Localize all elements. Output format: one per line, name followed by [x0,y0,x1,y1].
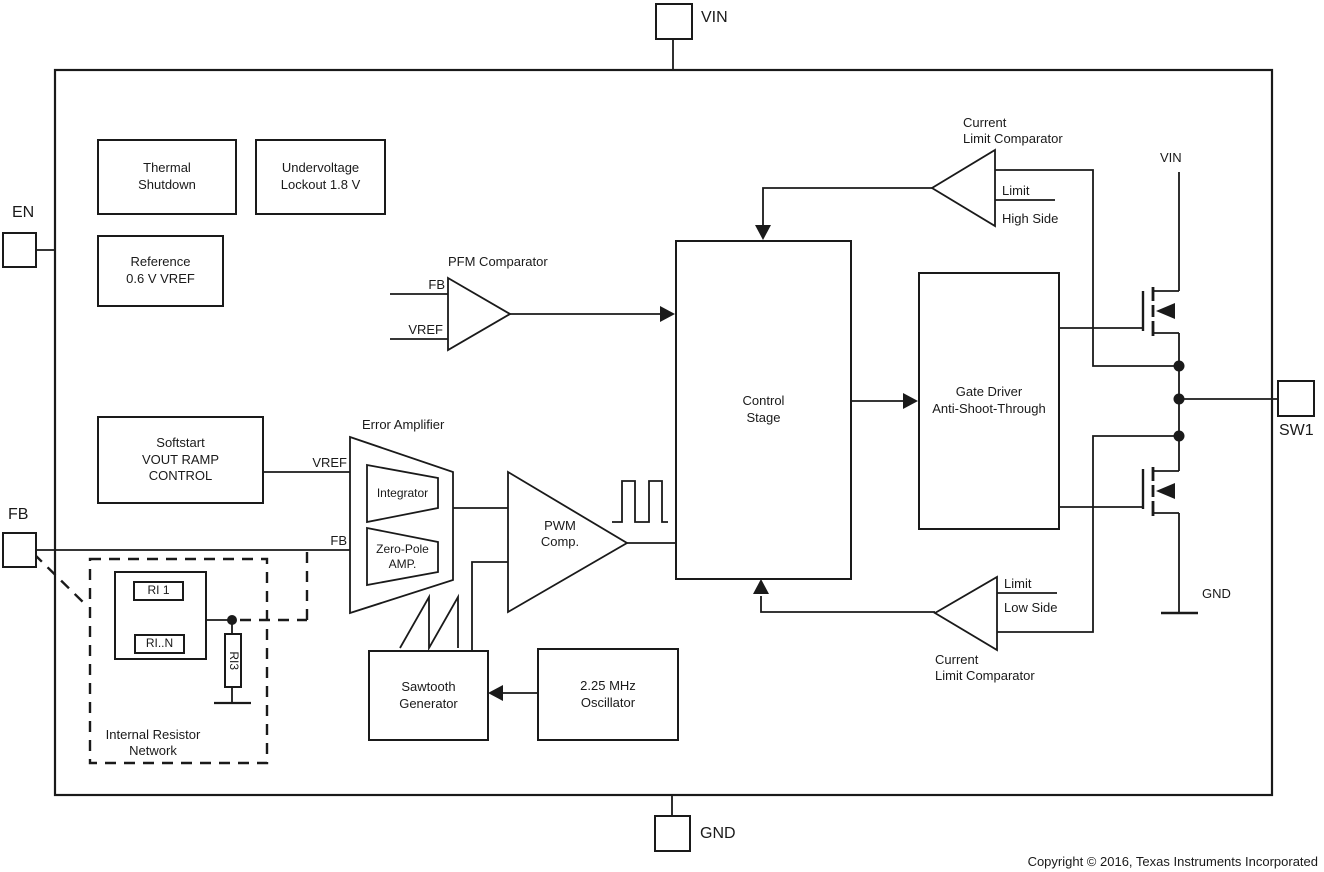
pin-sw1 [1277,380,1315,417]
ea-fb-label: FB [300,533,347,549]
arrow-cl-top-out [755,225,771,240]
error-amplifier-title: Error Amplifier [362,417,444,433]
pin-en [2,232,37,268]
error-amplifier-shape [350,437,453,613]
wire-fb-tap-dashed [240,552,307,620]
thermal-shutdown-block: Thermal Shutdown [97,139,237,215]
arrow-pfm-out [660,306,675,322]
cl-bottom-limit-label: Limit [1004,576,1031,592]
pin-vin-label: VIN [701,8,728,28]
current-limit-comparator-top-triangle [932,150,995,226]
undervoltage-lockout-block: Undervoltage Lockout 1.8 V [255,139,386,215]
junction-dot-sense-high [1174,361,1185,372]
gate-driver-block: Gate Driver Anti-Shoot-Through [918,272,1060,530]
arrow-osc-out [488,685,503,701]
pfm-fb-label: FB [397,277,445,293]
ea-vref-label: VREF [290,455,347,471]
resistor-network-label: Internal Resistor Network [92,727,214,759]
cl-top-title: Current Limit Comparator [963,115,1063,147]
pulse-waveform-icon [612,481,668,522]
arrow-cl-bottom-out [753,579,769,594]
fb-zoom-leader-dashed [34,554,88,607]
wire-cl-top-out [763,188,932,228]
hs-mosfet-body-arrow [1156,303,1175,319]
block-diagram: VIN GND EN FB SW1 Thermal Shutdown Under… [0,0,1324,872]
sawtooth-waveform-icon [400,597,458,648]
cl-top-side-label: High Side [1002,211,1058,227]
zero-pole-label: Zero-Pole AMP. [360,542,445,571]
wire-ls-source [1153,513,1179,613]
pfm-comparator-title: PFM Comparator [448,254,548,270]
wire-cl-bottom-out [761,596,935,612]
sawtooth-generator-block: Sawtooth Generator [368,650,489,741]
ri1-box: RI 1 [133,581,184,601]
current-limit-comparator-bottom-triangle [935,577,997,650]
control-stage-block: Control Stage [675,240,852,580]
pin-sw1-label: SW1 [1279,421,1314,441]
cl-bottom-title: Current Limit Comparator [935,652,1035,684]
rin-box: RI..N [134,634,185,654]
pfm-comparator-triangle [448,278,510,350]
cl-bottom-side-label: Low Side [1004,600,1057,616]
oscillator-block: 2.25 MHz Oscillator [537,648,679,741]
ls-mosfet-body-arrow [1156,483,1175,499]
cl-top-limit-label: Limit [1002,183,1029,199]
wire-sawtooth-to-pwm [472,562,508,650]
copyright-text: Copyright © 2016, Texas Instruments Inco… [1000,854,1318,870]
pin-fb [2,532,37,568]
pfm-vref-label: VREF [385,322,443,338]
pin-en-label: EN [12,203,34,223]
junction-dot-sense-low [1174,431,1185,442]
gnd-rail-label: GND [1202,586,1231,602]
vin-rail-label: VIN [1160,150,1182,166]
softstart-block: Softstart VOUT RAMP CONTROL [97,416,264,504]
reference-block: Reference 0.6 V VREF [97,235,224,307]
ri3-resistor: RI3 [224,633,242,688]
junction-dot-sw [1174,394,1185,405]
arrow-cs-to-gd [903,393,918,409]
junction-dot-ri3 [227,615,237,625]
integrator-label: Integrator [360,486,445,501]
pin-vin [655,3,693,40]
pin-fb-label: FB [8,505,28,525]
pwm-comp-label: PWM Comp. [515,518,605,550]
pin-gnd-label: GND [700,824,736,844]
pin-gnd [654,815,691,852]
